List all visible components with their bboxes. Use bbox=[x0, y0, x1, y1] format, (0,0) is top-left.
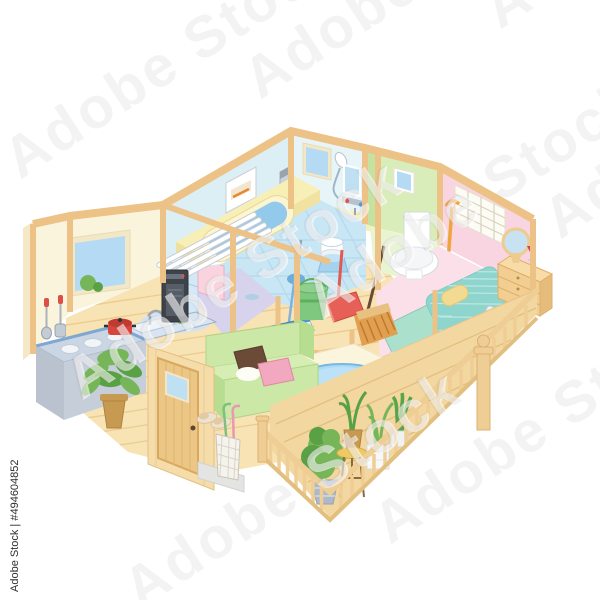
cushion-white bbox=[236, 367, 260, 381]
corner-post bbox=[256, 416, 269, 462]
watermark-id-text: Adobe Stock | #494604852 bbox=[9, 459, 21, 592]
door-knob bbox=[191, 426, 196, 431]
front-door bbox=[158, 358, 198, 474]
bathroom-window bbox=[303, 143, 331, 180]
svg-text:Adobe Stock: Adobe Stock bbox=[472, 0, 600, 41]
house-cutaway-illustration: Adobe StockAdobe Stock Adobe StockAdobe … bbox=[0, 0, 600, 600]
adobe-stock-preview: Adobe StockAdobe Stock Adobe StockAdobe … bbox=[0, 0, 600, 600]
kitchen-window bbox=[70, 230, 130, 296]
finial-post bbox=[474, 335, 493, 430]
